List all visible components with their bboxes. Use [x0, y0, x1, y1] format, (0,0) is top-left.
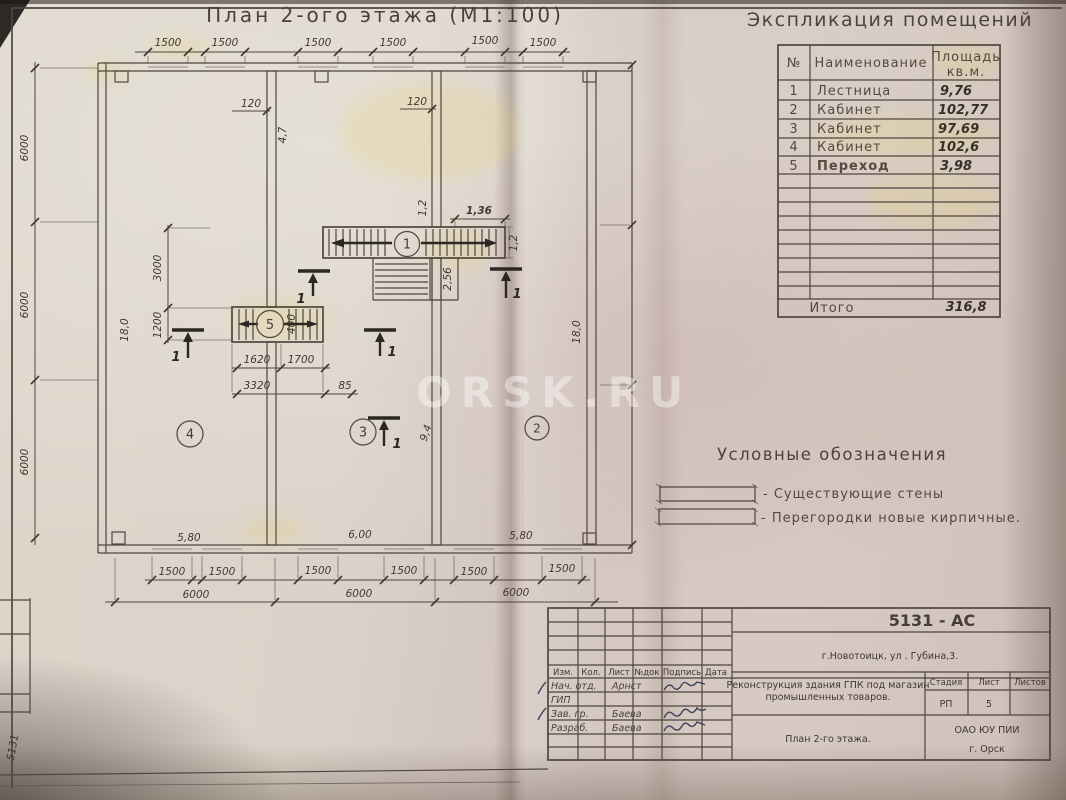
- total-value: 316,8: [945, 300, 986, 315]
- section-label: 1: [392, 437, 401, 452]
- tb-stage-label: Стадия: [930, 678, 963, 688]
- dimension-labels: 1500 1500 1500 1500 1500 1500 1500 1500 …: [19, 35, 583, 601]
- room-number-5: 5: [266, 318, 274, 333]
- dim-label: 400: [286, 314, 298, 334]
- total-label: Итого: [809, 301, 854, 316]
- dim-label: 2,56: [442, 267, 454, 291]
- row-area: 97,69: [938, 122, 979, 137]
- row-area: 102,6: [938, 140, 979, 155]
- tb-name-3: Баева: [612, 709, 642, 720]
- dim-label: 18,0: [571, 320, 583, 344]
- row-area: 3,98: [940, 159, 972, 174]
- col-header-area2: кв.м.: [947, 65, 986, 80]
- dim-label: 1200: [152, 311, 164, 338]
- dim-label: 6000: [19, 448, 31, 475]
- section-label: 1: [296, 292, 305, 307]
- tb-org-line2: г. Орск: [969, 744, 1005, 755]
- row-name: Лестница: [817, 84, 891, 99]
- tb-header-izm: Изм.: [553, 668, 573, 678]
- dim-label: 6000: [19, 134, 31, 161]
- tb-code: 5131 - АС: [889, 611, 975, 630]
- dim-label: 1500: [212, 37, 239, 49]
- edge-stamp-number: 5131: [5, 733, 21, 761]
- dim-label: 1620: [244, 354, 271, 366]
- dim-label: 4,7: [277, 126, 289, 143]
- tb-header-ndok: №док: [634, 668, 659, 678]
- row-name: Кабинет: [817, 140, 882, 155]
- dim-label: 120: [407, 96, 427, 108]
- room-number-4: 4: [186, 428, 194, 443]
- dim-label: 1,2: [417, 199, 429, 216]
- tb-org-line1: ОАО ЮУ ПИИ: [955, 725, 1020, 736]
- tb-name-4: Баева: [612, 723, 642, 734]
- legend-new-partitions: - Перегородки новые кирпичные.: [761, 511, 1021, 526]
- room-number-1: 1: [403, 238, 411, 253]
- legend-existing-walls: - Существующие стены: [763, 487, 944, 502]
- dim-label: 1700: [288, 354, 315, 366]
- dim-label: 3320: [244, 380, 271, 392]
- tb-sheet-label: Лист: [978, 678, 1000, 688]
- tb-address: г.Новотоицк, ул . Губина,3.: [822, 651, 958, 662]
- tb-role-1: Нач. отд.: [551, 681, 597, 692]
- col-header-name: Наименование: [814, 56, 927, 71]
- tb-role-4: Разраб.: [551, 723, 588, 734]
- tb-sheet-name: План 2-го этажа.: [785, 734, 871, 745]
- dim-label: 6000: [183, 589, 210, 601]
- dim-label: 6000: [19, 291, 31, 318]
- explication-rows: 1 Лестница 9,76 2 Кабинет 102,77 3 Кабин…: [789, 84, 989, 174]
- tb-header-podpis: Подпись: [663, 668, 701, 678]
- blueprint-photo: 5131 План 2-ого этажа (М1:100): [0, 0, 1066, 800]
- dim-label: 1500: [472, 35, 499, 47]
- dim-label: 6000: [346, 588, 373, 600]
- dim-label: 1500: [380, 37, 407, 49]
- dim-label: 120: [241, 98, 261, 110]
- row-area: 102,77: [938, 103, 989, 118]
- legend-title: Условные обозначения: [717, 445, 947, 464]
- tb-project-line1: Реконструкция здания ГПК под магазин: [727, 680, 930, 691]
- section-label: 1: [387, 345, 396, 360]
- col-header-num: №: [787, 56, 802, 71]
- dim-label: 1500: [461, 566, 488, 578]
- tb-stage-value: РП: [940, 699, 953, 710]
- dim-label: 6,00: [348, 529, 372, 541]
- dim-label: 18,0: [119, 318, 131, 342]
- room-number-3: 3: [359, 426, 367, 441]
- tb-header-data: Дата: [705, 668, 727, 678]
- room-number-2: 2: [533, 422, 541, 436]
- section-label: 1: [512, 287, 521, 302]
- dim-label: 1500: [159, 566, 186, 578]
- dim-label: 1500: [209, 566, 236, 578]
- tb-header-kol: Кол.: [581, 668, 600, 678]
- row-num: 4: [789, 140, 798, 155]
- dim-label: 85: [338, 380, 352, 392]
- tb-role-2: ГИП: [551, 695, 571, 706]
- tb-name-1: Арнст: [611, 681, 642, 692]
- row-name: Кабинет: [817, 122, 882, 137]
- row-num: 1: [789, 84, 798, 99]
- plan-new-partitions: [267, 71, 596, 545]
- tb-sheet-value: 5: [986, 699, 992, 710]
- dim-label: 5,80: [509, 530, 533, 542]
- dim-label: 1500: [391, 565, 418, 577]
- row-num: 5: [789, 159, 798, 174]
- row-name: Кабинет: [817, 103, 882, 118]
- col-header-area1: Площадь: [931, 50, 1001, 65]
- row-num: 2: [789, 103, 798, 118]
- section-label: 1: [171, 350, 180, 365]
- tb-project-line2: промышленных товаров.: [765, 692, 890, 703]
- dim-label: 5,80: [177, 532, 201, 544]
- explication-title: Экспликация помещений: [747, 9, 1033, 31]
- tb-role-3: Зав. гр.: [551, 709, 589, 720]
- dim-label: 1,36: [466, 205, 492, 217]
- watermark: ORSK.RU: [416, 368, 692, 417]
- tb-header-list: Лист: [608, 668, 630, 678]
- dim-label: 1500: [305, 37, 332, 49]
- plan-title: План 2-ого этажа (М1:100): [206, 3, 564, 27]
- dim-label: 1500: [530, 37, 557, 49]
- section-marks: [172, 269, 522, 446]
- dim-label: 1500: [305, 565, 332, 577]
- tb-sheets-label: Листов: [1014, 678, 1046, 688]
- row-area: 9,76: [940, 84, 972, 99]
- dim-label: 6000: [503, 587, 530, 599]
- plan-columns: [112, 71, 596, 544]
- row-num: 3: [789, 122, 798, 137]
- dim-label: 3000: [152, 254, 164, 281]
- legend-symbols: [655, 484, 758, 526]
- row-name: Переход: [817, 159, 890, 174]
- dim-label: 1500: [549, 563, 576, 575]
- dim-label: 1500: [155, 37, 182, 49]
- dim-label: 1,2: [508, 234, 520, 251]
